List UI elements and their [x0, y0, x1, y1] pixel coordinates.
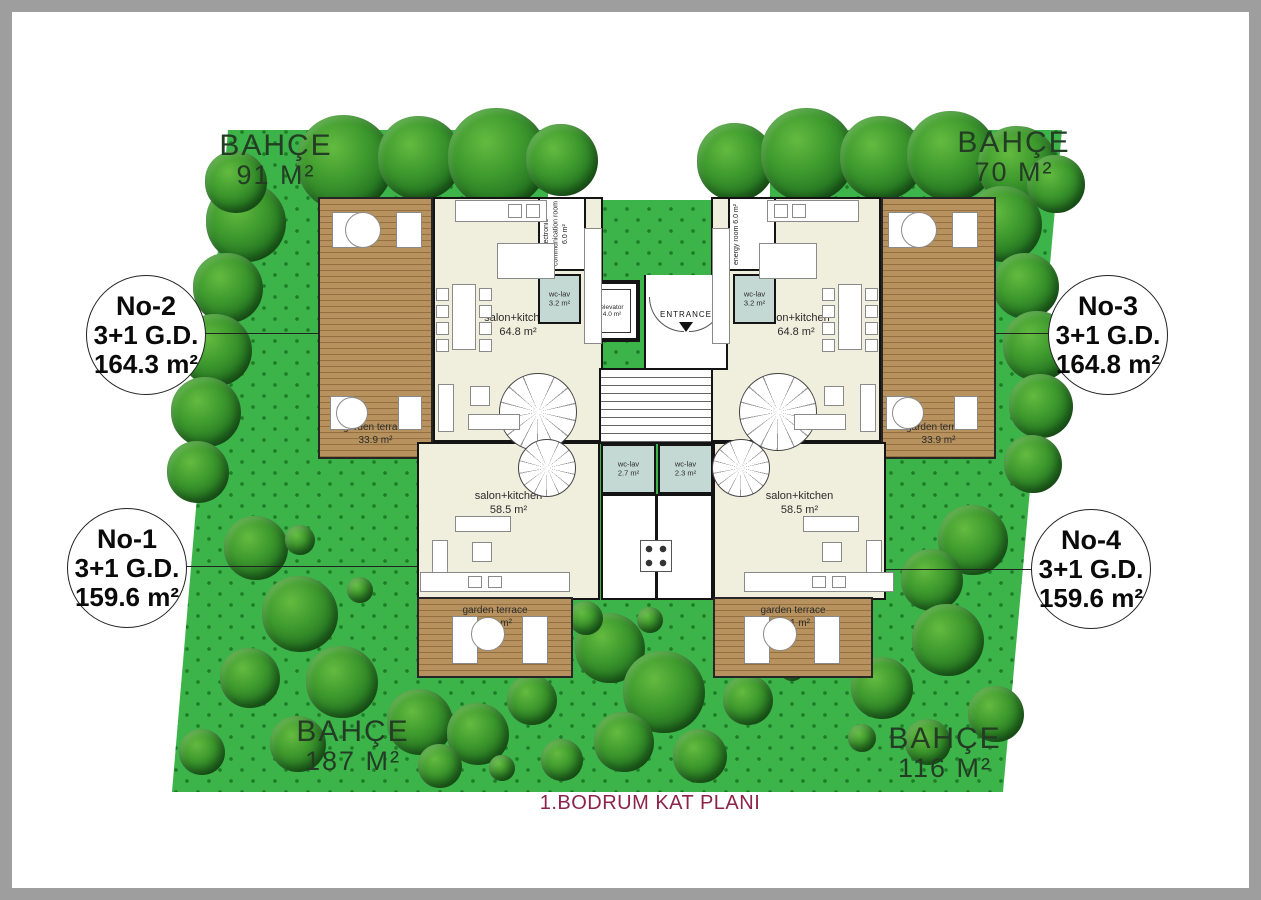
furniture — [479, 305, 492, 318]
plan-title: 1.BODRUM KAT PLANI — [430, 792, 870, 815]
furniture — [822, 542, 842, 562]
furniture — [436, 322, 449, 335]
tree — [347, 577, 373, 603]
tree — [594, 712, 654, 772]
tree — [285, 525, 315, 555]
unit-connector-line — [181, 566, 419, 567]
furniture — [822, 339, 835, 352]
garden-label-top-left: BAHÇE91 M² — [196, 131, 356, 191]
furniture — [468, 576, 482, 588]
tree — [179, 729, 225, 775]
tree — [526, 124, 598, 196]
tree — [723, 675, 773, 725]
furniture — [455, 516, 511, 532]
unit-connector-line — [884, 569, 1033, 570]
furniture — [526, 204, 540, 218]
furniture — [497, 243, 555, 279]
tree — [193, 253, 263, 323]
furniture — [838, 284, 862, 350]
main-staircase — [599, 368, 713, 444]
furniture — [865, 322, 878, 335]
unit-badge-no1: No-13+1 G.D.159.6 m² — [67, 508, 187, 628]
furniture — [860, 384, 876, 432]
entrance-arrow-icon — [679, 322, 693, 332]
tree — [489, 755, 515, 781]
furniture — [952, 212, 978, 248]
furniture — [436, 288, 449, 301]
furniture — [812, 576, 826, 588]
furniture — [522, 616, 548, 664]
entrance-label: ENTRANCE — [644, 310, 728, 332]
furniture — [954, 396, 978, 430]
furniture — [479, 322, 492, 335]
tree — [507, 675, 557, 725]
unit-badge-no2: No-23+1 G.D.164.3 m² — [86, 275, 206, 395]
furniture — [794, 414, 846, 430]
garden-label-bottom-left: BAHÇE187 M² — [273, 717, 433, 777]
furniture — [822, 305, 835, 318]
furniture — [822, 322, 835, 335]
wc-lav-no4: wc-lav2.3 m² — [658, 444, 713, 494]
furniture — [892, 397, 924, 429]
furniture — [452, 284, 476, 350]
furniture — [396, 212, 422, 248]
furniture — [345, 212, 381, 248]
wc-lav-no2: wc-lav3.2 m² — [538, 274, 581, 324]
furniture — [865, 305, 878, 318]
furniture — [759, 243, 817, 279]
furniture — [814, 616, 840, 664]
tree — [167, 441, 229, 503]
tree — [993, 253, 1059, 319]
furniture — [470, 386, 490, 406]
furniture — [336, 397, 368, 429]
furniture — [584, 228, 602, 344]
tree — [1009, 374, 1073, 438]
tree — [673, 729, 727, 783]
furniture — [865, 339, 878, 352]
site-plan: garden terrace33.9 m² garden terrace33.9… — [0, 0, 1261, 900]
furniture — [763, 617, 797, 651]
furniture — [803, 516, 859, 532]
tree — [171, 377, 241, 447]
furniture — [479, 288, 492, 301]
unit-connector-line — [993, 333, 1050, 334]
furniture — [822, 288, 835, 301]
tree — [1004, 435, 1062, 493]
furniture — [398, 396, 422, 430]
furniture — [508, 204, 522, 218]
wc-lav-no3: wc-lav3.2 m² — [733, 274, 776, 324]
tree — [541, 739, 583, 781]
furniture — [824, 386, 844, 406]
furniture — [471, 617, 505, 651]
furniture — [832, 576, 846, 588]
wc-lav-no1: wc-lav2.7 m² — [601, 444, 656, 494]
garden-label-top-right: BAHÇE70 M² — [934, 128, 1094, 188]
tree — [901, 549, 963, 611]
tree — [912, 604, 984, 676]
unit-connector-line — [205, 333, 327, 334]
tree — [569, 601, 603, 635]
spiral-stair-no4 — [712, 439, 770, 497]
furniture — [901, 212, 937, 248]
tree — [220, 648, 280, 708]
tree — [262, 576, 338, 652]
tree — [306, 646, 378, 718]
furniture — [438, 384, 454, 432]
kitchen-hob — [640, 540, 672, 572]
spiral-stair-no1 — [518, 439, 576, 497]
garden-label-bottom-right: BAHÇE116 M² — [865, 724, 1025, 784]
unit-badge-no4: No-43+1 G.D.159.6 m² — [1031, 509, 1151, 629]
furniture — [488, 576, 502, 588]
furniture — [472, 542, 492, 562]
spiral-stair-no3 — [739, 373, 817, 451]
furniture — [468, 414, 520, 430]
furniture — [436, 339, 449, 352]
furniture — [792, 204, 806, 218]
furniture — [479, 339, 492, 352]
tree — [637, 607, 663, 633]
furniture — [774, 204, 788, 218]
furniture — [436, 305, 449, 318]
unit-badge-no3: No-33+1 G.D.164.8 m² — [1048, 275, 1168, 395]
tree — [224, 516, 288, 580]
furniture — [865, 288, 878, 301]
